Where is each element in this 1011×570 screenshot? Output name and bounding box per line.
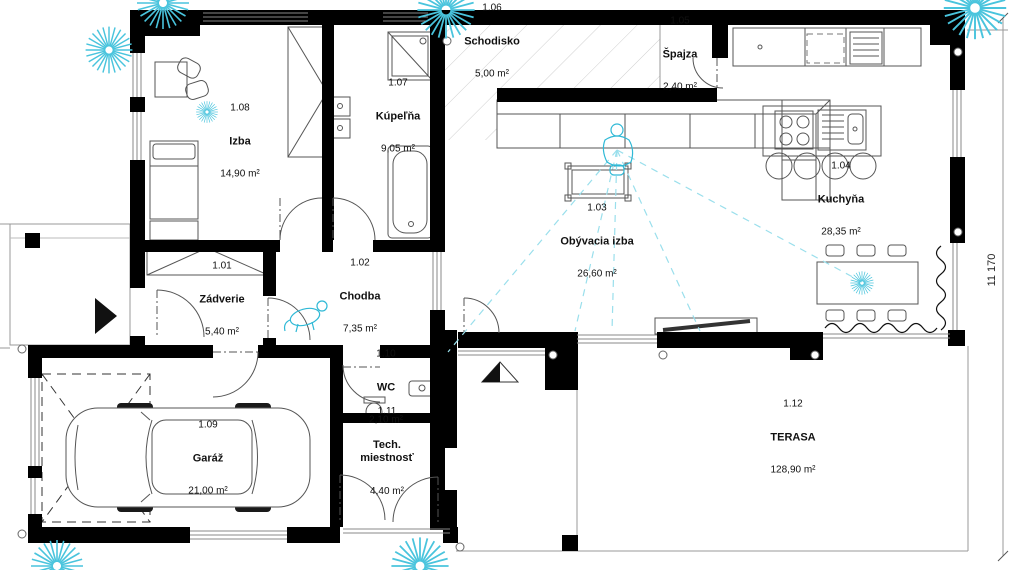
- car: [66, 403, 310, 512]
- plants: [196, 101, 874, 295]
- bathroom-fixtures: [333, 32, 432, 238]
- sofa: [497, 100, 830, 200]
- dog-figure: [285, 301, 327, 332]
- entrance-porch: [0, 224, 130, 348]
- kitchen-counter: [733, 28, 921, 66]
- stairs-hatch: [445, 25, 660, 140]
- step-marker: [482, 362, 518, 382]
- entrance-arrow: [95, 298, 117, 334]
- floor-plan: 1.01 Zádverie 5,40 m² 1.02 Chodba 7,35 m…: [0, 0, 1011, 570]
- curtains: [825, 246, 946, 333]
- bedroom-furniture: [150, 27, 327, 240]
- terrace-outline: [456, 346, 968, 551]
- floor-plan-drawing: [0, 0, 1011, 570]
- coffee-table: [565, 163, 631, 201]
- tv-stand: [655, 318, 757, 334]
- dimension-label: 11 170: [986, 239, 998, 301]
